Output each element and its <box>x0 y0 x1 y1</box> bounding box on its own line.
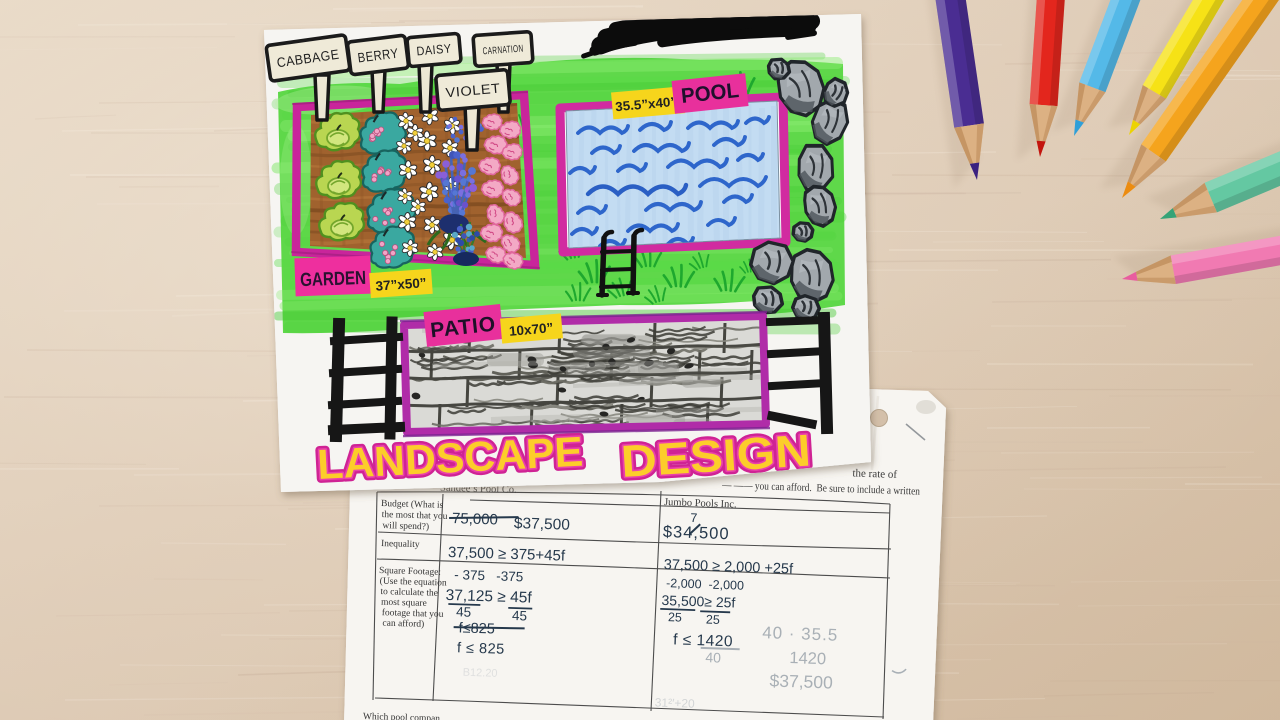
svg-text:the most that you: the most that you <box>382 510 448 522</box>
svg-text:75,000: 75,000 <box>452 510 498 528</box>
svg-text:will spend?): will spend?) <box>382 520 429 532</box>
svg-text:40 · 35.5: 40 · 35.5 <box>762 623 839 645</box>
svg-text:40: 40 <box>705 649 721 666</box>
svg-text:1420: 1420 <box>789 649 826 668</box>
svg-text:can afford): can afford) <box>382 618 424 630</box>
svg-text:f≤825: f≤825 <box>458 620 495 637</box>
svg-text:$37,500: $37,500 <box>514 515 571 534</box>
svg-text:25: 25 <box>668 610 682 624</box>
svg-text:Budget (What is: Budget (What is <box>381 498 444 511</box>
svg-text:$34,500: $34,500 <box>663 523 730 543</box>
svg-text:45: 45 <box>456 604 471 619</box>
svg-text:31²′+20: 31²′+20 <box>655 695 696 710</box>
svg-text:most square: most square <box>381 598 427 609</box>
svg-text:the rate of: the rate of <box>852 467 897 480</box>
svg-text:Which pool compan: Which pool compan <box>363 712 441 720</box>
svg-text:35,500≥ 25f: 35,500≥ 25f <box>661 592 735 611</box>
svg-text:7: 7 <box>690 511 697 525</box>
svg-text:f ≤ 825: f ≤ 825 <box>457 640 505 657</box>
svg-text:- 375 -375: - 375 -375 <box>454 567 523 584</box>
svg-text:$37,500: $37,500 <box>769 670 833 692</box>
svg-text:-2,000 -2,000: -2,000 -2,000 <box>666 576 744 593</box>
svg-text:GARDEN: GARDEN <box>300 268 367 291</box>
svg-text:Inequality: Inequality <box>381 539 420 550</box>
svg-text:25: 25 <box>706 612 720 626</box>
svg-text:45: 45 <box>512 608 527 623</box>
svg-text:B12.20: B12.20 <box>462 667 497 680</box>
